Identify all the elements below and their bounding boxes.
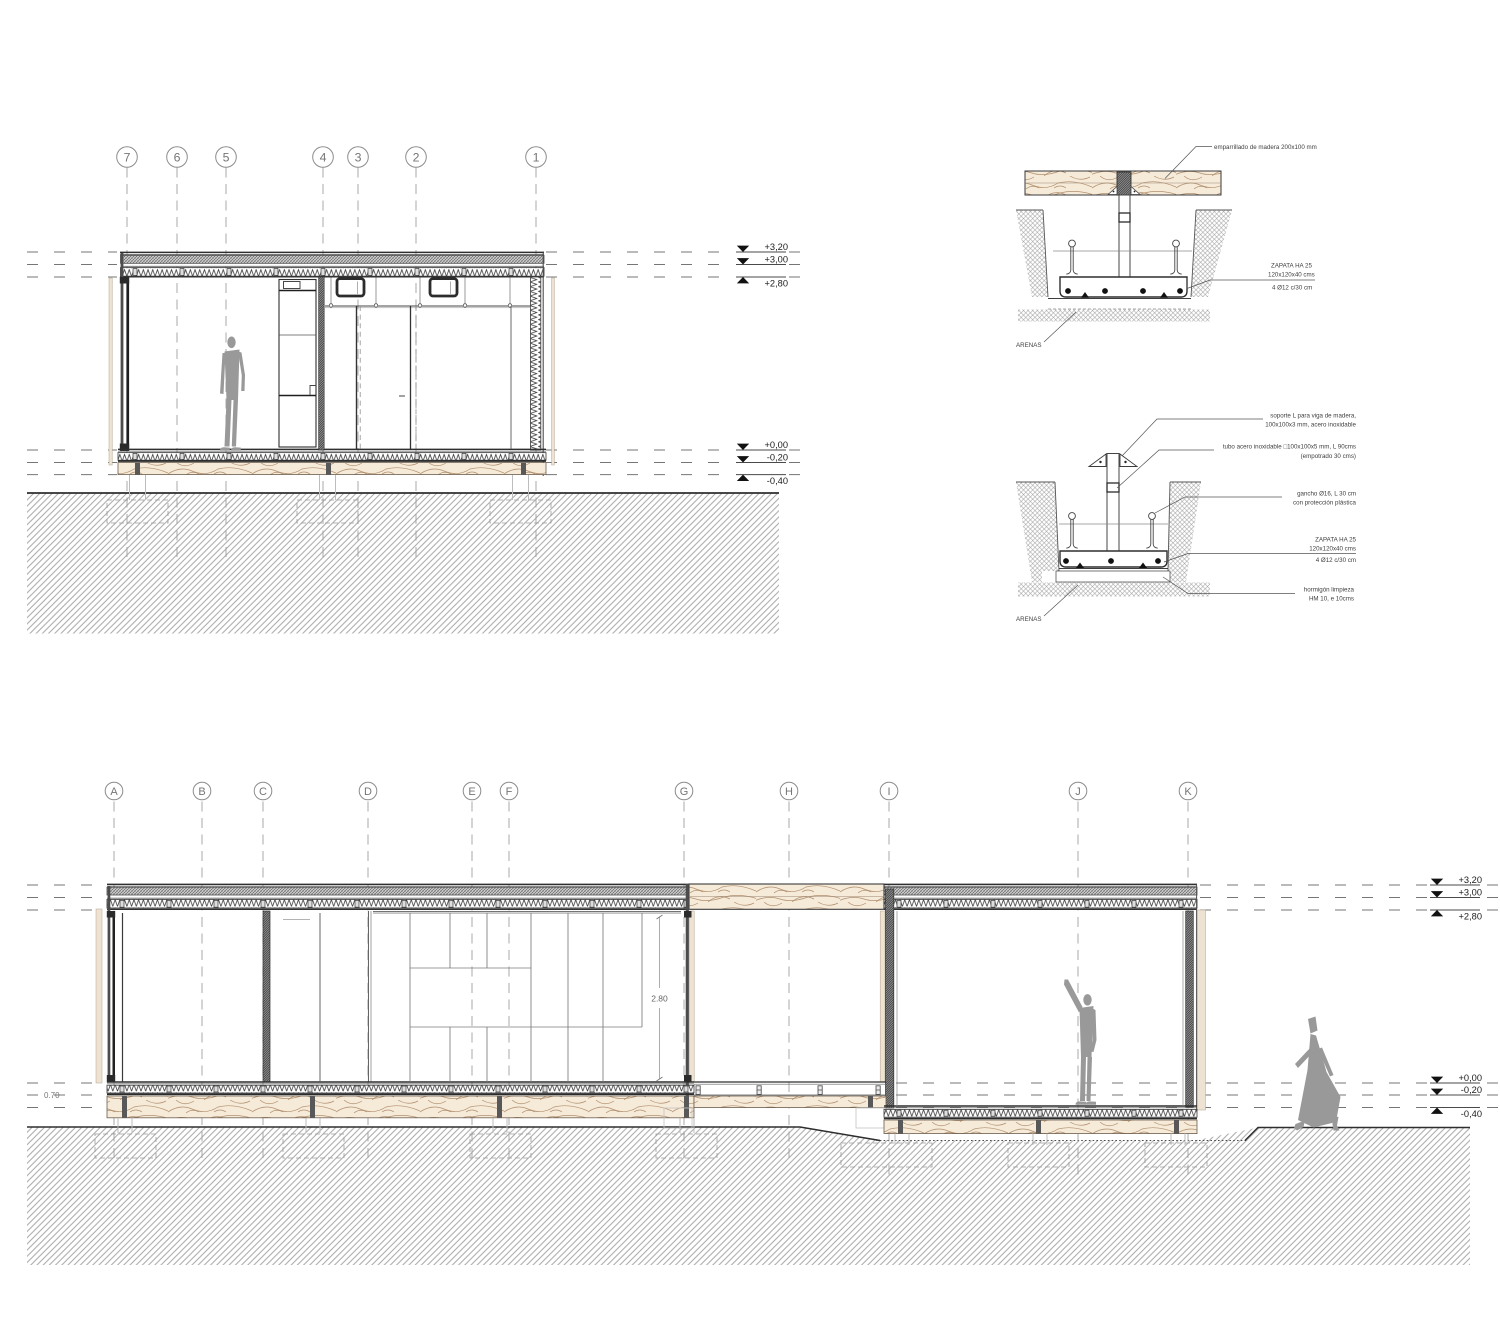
svg-text:+3,20: +3,20	[764, 242, 788, 252]
svg-text:A: A	[110, 786, 118, 798]
svg-text:soporte L para viga de madera,: soporte L para viga de madera,	[1270, 413, 1356, 420]
svg-text:HM 10, e 10cms: HM 10, e 10cms	[1309, 596, 1354, 603]
svg-text:3: 3	[355, 150, 362, 164]
svg-text:gancho Ø16, L 30 cm: gancho Ø16, L 30 cm	[1297, 491, 1356, 498]
svg-text:(empotrado 30 cms): (empotrado 30 cms)	[1301, 453, 1356, 460]
svg-text:+2,80: +2,80	[1458, 912, 1482, 922]
svg-text:B: B	[198, 786, 205, 798]
svg-text:E: E	[468, 786, 475, 798]
svg-text:I: I	[887, 786, 890, 798]
svg-text:4: 4	[320, 150, 327, 164]
svg-text:H: H	[785, 786, 793, 798]
svg-text:hormigón limpieza: hormigón limpieza	[1304, 587, 1355, 594]
svg-text:ARENAS: ARENAS	[1016, 342, 1041, 349]
svg-text:2.80: 2.80	[651, 994, 668, 1004]
svg-text:100x100x3 mm, acero inoxidable: 100x100x3 mm, acero inoxidable	[1265, 422, 1356, 429]
svg-text:5: 5	[223, 150, 230, 164]
svg-text:J: J	[1075, 786, 1081, 798]
svg-text:120x120x40 cms: 120x120x40 cms	[1268, 272, 1315, 279]
svg-text:4 Ø12 c/30 cm: 4 Ø12 c/30 cm	[1316, 557, 1356, 564]
svg-text:con protección plástica: con protección plástica	[1293, 500, 1357, 507]
svg-text:+3,00: +3,00	[1458, 887, 1482, 897]
svg-text:4 Ø12 c/30 cm: 4 Ø12 c/30 cm	[1272, 285, 1312, 292]
svg-text:ZAPATA HA 25: ZAPATA HA 25	[1315, 537, 1356, 544]
svg-text:C: C	[259, 786, 267, 798]
svg-text:0.70: 0.70	[44, 1091, 60, 1100]
svg-text:G: G	[680, 786, 689, 798]
svg-text:K: K	[1184, 786, 1192, 798]
svg-text:2: 2	[413, 150, 420, 164]
svg-text:+0,00: +0,00	[1458, 1073, 1482, 1083]
svg-text:-0,40: -0,40	[767, 476, 788, 486]
svg-text:tubo acero inoxidable □100x100: tubo acero inoxidable □100x100x5 mm, L 9…	[1223, 444, 1356, 451]
svg-text:120x120x40 cms: 120x120x40 cms	[1309, 546, 1356, 553]
svg-text:-0,20: -0,20	[1461, 1085, 1482, 1095]
svg-text:1: 1	[533, 150, 540, 164]
svg-text:+3,20: +3,20	[1458, 875, 1482, 885]
svg-text:7: 7	[124, 150, 131, 164]
svg-text:6: 6	[174, 150, 181, 164]
svg-text:+0,00: +0,00	[764, 440, 788, 450]
svg-text:F: F	[506, 786, 513, 798]
svg-text:emparrillado de madera 200x100: emparrillado de madera 200x100 mm	[1214, 144, 1317, 151]
svg-text:D: D	[364, 786, 372, 798]
svg-text:ARENAS: ARENAS	[1016, 616, 1041, 623]
svg-text:-0,40: -0,40	[1461, 1109, 1482, 1119]
svg-text:ZAPATA HA 25: ZAPATA HA 25	[1271, 263, 1312, 270]
svg-text:-0,20: -0,20	[767, 452, 788, 462]
svg-text:+3,00: +3,00	[764, 254, 788, 264]
svg-text:+2,80: +2,80	[764, 279, 788, 289]
